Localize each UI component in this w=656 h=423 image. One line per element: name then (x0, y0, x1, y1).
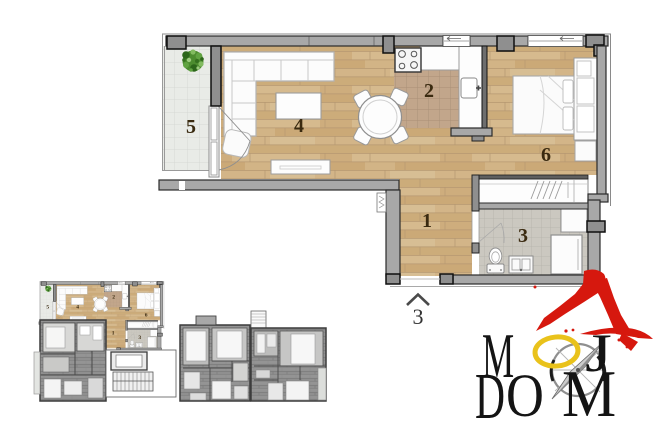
svg-text:6: 6 (541, 144, 551, 166)
svg-text:1: 1 (422, 210, 432, 232)
svg-text:5: 5 (186, 116, 196, 138)
svg-text:D: D (475, 359, 505, 423)
svg-text:4: 4 (294, 115, 304, 137)
svg-text:3: 3 (518, 225, 528, 247)
svg-text:3: 3 (413, 304, 424, 329)
svg-text:O: O (506, 362, 544, 423)
svg-text:2: 2 (424, 80, 434, 102)
svg-text:M: M (562, 356, 616, 423)
